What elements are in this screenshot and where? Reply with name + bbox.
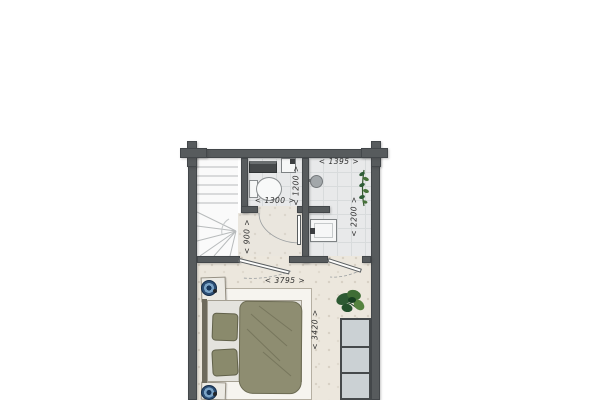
wall-corner-top-right-arm <box>361 148 388 158</box>
toilet-shelf <box>249 161 277 173</box>
wardrobe <box>340 318 371 400</box>
floor-plan: < 1395 > < 1200 > < 1300 > < 2200 > < 90… <box>0 0 600 400</box>
dimension-label: < 2200 > <box>350 195 359 239</box>
washbasin <box>310 219 337 242</box>
wall-toilet-bottom <box>241 206 258 213</box>
tap-icon <box>310 228 315 234</box>
dimension-label: < 900 > <box>243 215 252 259</box>
pillow <box>211 348 238 376</box>
wardrobe-shelf-divider <box>342 346 369 348</box>
pillow <box>212 313 239 342</box>
wall-bedroom-divider-right <box>362 256 371 263</box>
dimension-label: < 3420 > <box>311 308 320 352</box>
dimension-label: < 1395 > <box>317 157 361 166</box>
bed-duvet <box>239 301 303 395</box>
wall-right <box>371 149 380 400</box>
table-lamp <box>201 280 217 296</box>
wall-bedroom-divider-mid <box>289 256 328 263</box>
wall-bedroom-divider-left <box>197 256 240 263</box>
toilet-door <box>297 215 301 245</box>
wall-bathroom-left <box>302 158 309 263</box>
wall-left <box>188 149 197 400</box>
dimension-label: < 3795 > <box>263 276 307 285</box>
wall-corner-top-left-arm <box>180 148 207 158</box>
stairwell-floor <box>197 158 238 256</box>
shower-head <box>310 175 323 188</box>
washbasin-bowl <box>314 223 333 238</box>
table-lamp <box>201 385 217 400</box>
wall-toilet-left <box>241 158 248 213</box>
dimension-label: < 1300 > <box>253 196 297 205</box>
wardrobe-shelf-divider <box>342 372 369 374</box>
